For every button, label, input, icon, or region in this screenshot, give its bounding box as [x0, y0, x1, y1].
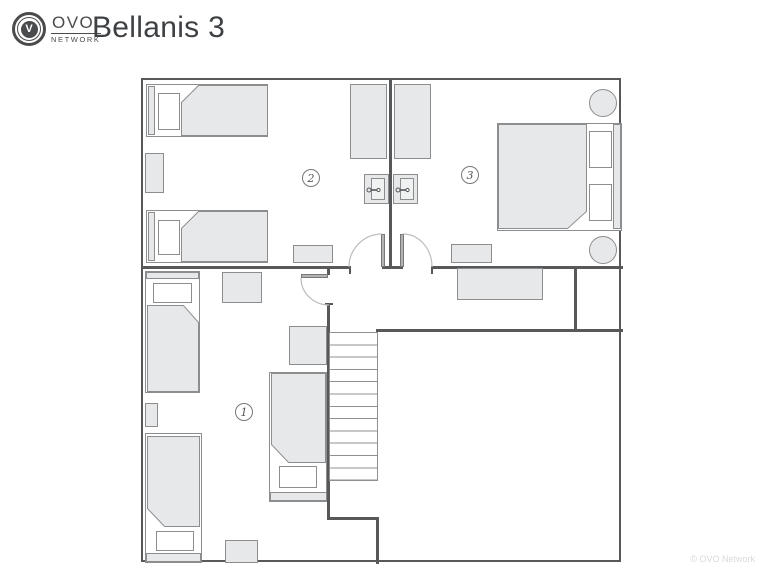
bed-pillow-room3-a	[589, 131, 612, 168]
bed-pillow-room3-b	[589, 184, 612, 221]
logo-monogram: V	[21, 21, 38, 38]
bench-room2	[293, 245, 333, 263]
door-jamb-room2	[349, 266, 351, 274]
cupboard-room1	[289, 326, 327, 365]
wall-understairs-right	[376, 517, 379, 564]
room-label-1: 1	[235, 403, 253, 421]
bench-room3	[451, 244, 492, 263]
ovo-logo-icon: V	[12, 12, 46, 46]
stool-room3-top	[589, 89, 617, 117]
wardrobe-room2	[350, 84, 387, 159]
wall-landing-closet	[574, 266, 577, 332]
door-swing-room2	[349, 234, 382, 267]
stool-room3-bottom	[589, 236, 617, 264]
bed-pillow-room1-a	[153, 283, 192, 303]
room-label-3: 3	[461, 166, 479, 184]
page-title: Bellanis 3	[92, 11, 225, 45]
nightstand-room1	[145, 403, 158, 427]
copyright-watermark: © OVO Network	[690, 554, 755, 564]
bed-headboard-room1-c	[270, 492, 327, 501]
bed-duvet-room1-c	[271, 373, 326, 463]
bed-duvet-room1-a	[147, 305, 199, 392]
bed-pillow-room1-b	[156, 531, 194, 551]
tap-icon	[395, 186, 411, 194]
washbasin-room2	[364, 174, 389, 204]
logo-inner-ring: V	[17, 17, 41, 41]
wall-landing-bottom	[376, 329, 623, 332]
wall-understairs-bottom	[327, 517, 379, 520]
wall-room2-bottom	[141, 266, 351, 269]
bed-headboard-room2-a	[148, 86, 155, 135]
dresser-landing	[457, 268, 543, 300]
bed-headboard-room1-a	[146, 272, 199, 279]
bed-duvet-room1-b	[147, 436, 200, 527]
wardrobe-room3	[394, 84, 431, 159]
bed-pillow-room2-a	[158, 93, 180, 130]
dresser-room2	[145, 153, 164, 193]
bed-duvet-room2-b	[181, 211, 268, 262]
bed-duvet-room3	[498, 124, 587, 229]
room-label-2: 2	[302, 169, 320, 187]
bed-duvet-room2-a	[181, 85, 268, 136]
door-swing-room3	[403, 234, 432, 267]
floorplan-page: V OVO NETWORK Bellanis 3	[0, 0, 766, 575]
bed-headboard-room2-b	[148, 212, 155, 261]
dresser-room1	[222, 272, 262, 303]
room-number-2: 2	[308, 172, 315, 185]
bed-pillow-room2-b	[158, 220, 180, 255]
washbasin-room3	[393, 174, 418, 204]
wall-room2-room3-divider	[389, 78, 392, 269]
door-swing-room1	[301, 278, 329, 305]
bed-headboard-room1-b	[146, 553, 201, 562]
door-jamb-room3	[431, 266, 433, 274]
staircase	[329, 332, 378, 481]
room-number-1: 1	[241, 406, 248, 419]
bed-pillow-room1-c	[279, 466, 317, 488]
bed-headboard-room3	[613, 124, 621, 229]
ovo-network-logo: V OVO NETWORK	[12, 12, 101, 46]
stool-room1	[225, 540, 258, 563]
tap-icon	[366, 186, 382, 194]
room-number-3: 3	[467, 169, 474, 182]
